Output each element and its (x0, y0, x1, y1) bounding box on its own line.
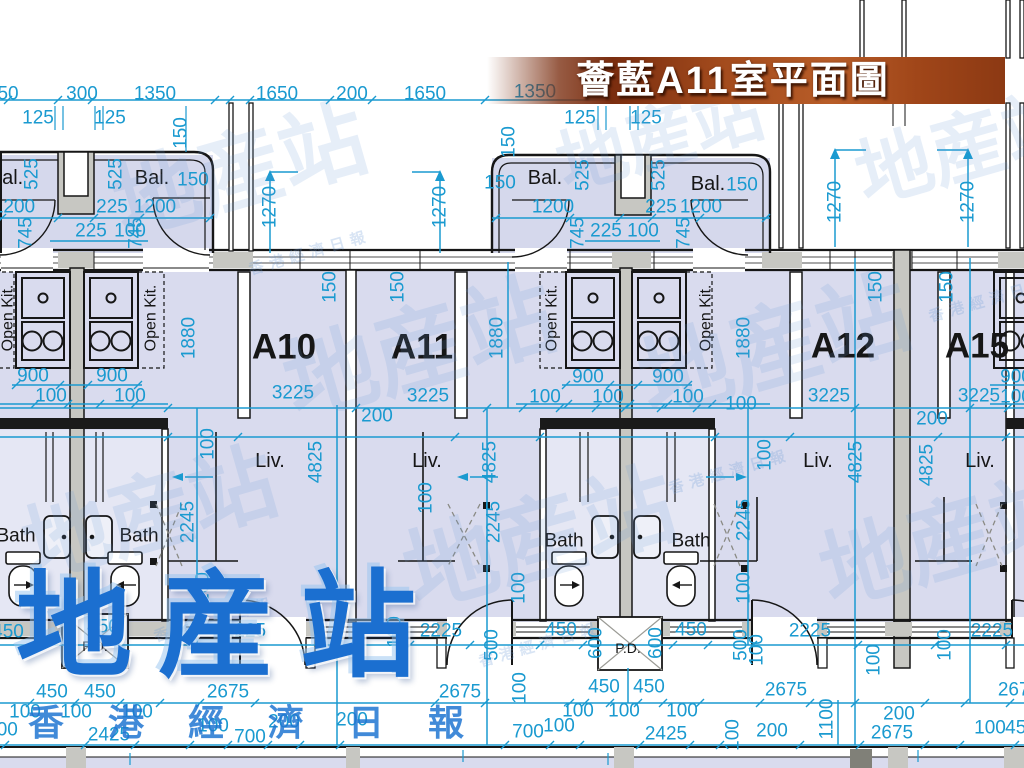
dimension-label: 100 (510, 672, 531, 704)
dimension-label: 100 (935, 629, 956, 661)
floor-plan-page: 5030013501650200165013501251251251251501… (0, 0, 1024, 768)
dimension-label: 150 (388, 271, 409, 303)
dimension-label: 200 (756, 721, 788, 742)
dimension-label: 2245 (734, 499, 755, 541)
dimension-label: 100 (592, 387, 624, 408)
dimension-label: 4825 (846, 441, 867, 483)
dimension-label: 450 (675, 620, 707, 641)
title-banner: 薈藍A11室平面圖 (487, 57, 1005, 104)
dimension-label: 225 (645, 197, 677, 218)
dimension-label: 4825 (917, 444, 938, 486)
dimension-label: 100 (747, 634, 768, 666)
dimension-label: 2675 (998, 680, 1024, 701)
dimension-label: 100 (627, 221, 659, 242)
room-label: Liv. (965, 450, 995, 472)
dimension-label: 900 (1000, 367, 1024, 388)
dimension-label: 100 (608, 701, 640, 722)
dimension-label: 900 (17, 366, 49, 387)
dimension-label: 900 (96, 366, 128, 387)
dimension-label: 100 (543, 716, 575, 737)
dimension-label: 400 (0, 720, 18, 741)
dimension-label: 1350 (134, 84, 176, 105)
dimension-label: 200 (916, 409, 948, 430)
dimension-label: 4825 (480, 441, 501, 483)
dimension-label: 50 (0, 84, 19, 105)
dimension-label: 2225 (789, 621, 831, 642)
dimension-label: 125 (22, 108, 54, 129)
dimension-label: 150 (320, 271, 341, 303)
dimension-label: 150 (484, 173, 516, 194)
dimension-label: 100 (974, 718, 1006, 739)
watermark-logo-subtext: 香港經濟日報 (28, 694, 508, 746)
dimension-label: 1650 (256, 84, 298, 105)
dimension-label: 100 (734, 572, 755, 604)
room-label: Bal. (691, 173, 725, 195)
dimension-label: 100 (529, 387, 561, 408)
dimension-label: 100 (666, 701, 698, 722)
page-title: 薈藍A11室平面圖 (487, 57, 1005, 106)
dimension-label: 1270 (430, 186, 451, 228)
dimension-label: 1100 (817, 699, 838, 740)
dimension-label: 745 (674, 217, 695, 249)
unit-label: A15 (945, 327, 1009, 366)
dimension-label: 225 (75, 221, 107, 242)
dimension-label: 2675 (765, 680, 807, 701)
dimension-label: 4825 (306, 441, 327, 483)
dimension-label: 600 (646, 627, 667, 659)
dimension-label: 225 (590, 221, 622, 242)
dimension-label: 100 (114, 386, 146, 407)
dimension-label: 1200 (0, 197, 35, 218)
dimension-label: 100 (864, 644, 885, 676)
dimension-label: 745 (16, 217, 37, 249)
room-label: Liv. (803, 450, 833, 472)
room-label: P.D. (615, 640, 640, 656)
dimension-label: 700 (512, 722, 544, 743)
dimension-label: 2425 (645, 724, 687, 745)
dimension-label: 1200 (680, 197, 722, 218)
dimension-label: 1270 (825, 181, 846, 223)
room-label: Liv. (412, 450, 442, 472)
dimension-label: 150 (937, 271, 958, 303)
dimension-label: 100 (416, 482, 437, 514)
room-label: Open Kit. (143, 285, 160, 352)
room-label: Open Kit. (0, 285, 17, 352)
dimension-label: 2675 (871, 723, 913, 744)
dimension-label: 900 (572, 367, 604, 388)
dimension-label: 2225 (971, 621, 1013, 642)
dimension-label: 100 (723, 719, 744, 751)
dimension-label: 3225 (958, 386, 1000, 407)
dimension-label: 745 (568, 217, 589, 249)
dimension-label: 450 (588, 677, 620, 698)
dimension-label: 100 (35, 386, 67, 407)
dimension-label: 450 (1005, 718, 1024, 739)
room-label: Bal. (528, 167, 562, 189)
dimension-label: 125 (94, 108, 126, 129)
dimension-label: 200 (883, 704, 915, 725)
room-label: Bal. (0, 167, 23, 189)
dimension-label: 150 (726, 175, 758, 196)
dimension-label: 300 (66, 84, 98, 105)
dimension-label: 525 (22, 158, 43, 190)
dimension-label: 100 (1000, 387, 1024, 408)
dimension-label: 150 (499, 126, 520, 158)
dimension-label: 1650 (404, 84, 446, 105)
watermark-logo: 地産站 (16, 566, 442, 688)
dimension-label: 1880 (179, 317, 200, 359)
dimension-label: 450 (633, 677, 665, 698)
